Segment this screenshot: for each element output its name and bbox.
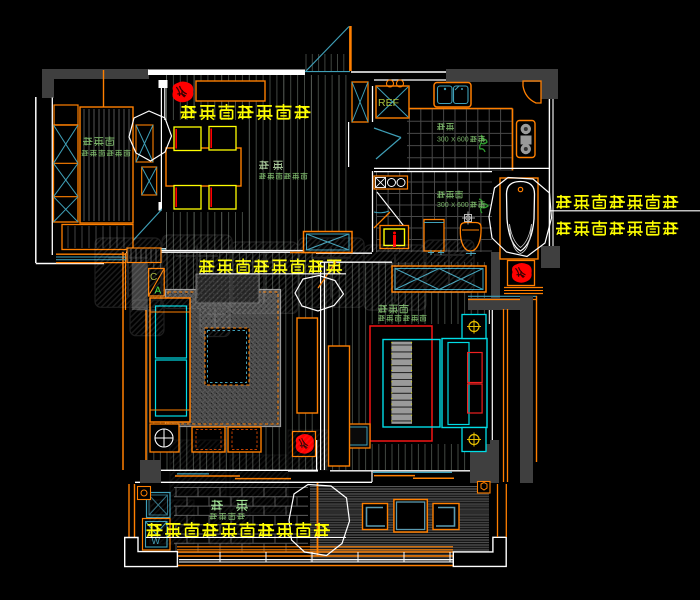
svg-text:600: 600 [457, 202, 469, 209]
svg-text:REF: REF [378, 97, 399, 109]
svg-text:300: 300 [437, 202, 449, 209]
svg-text:X: X [451, 137, 456, 144]
svg-text:600: 600 [457, 137, 469, 144]
svg-text:X: X [451, 202, 456, 209]
svg-text:300: 300 [437, 137, 449, 144]
